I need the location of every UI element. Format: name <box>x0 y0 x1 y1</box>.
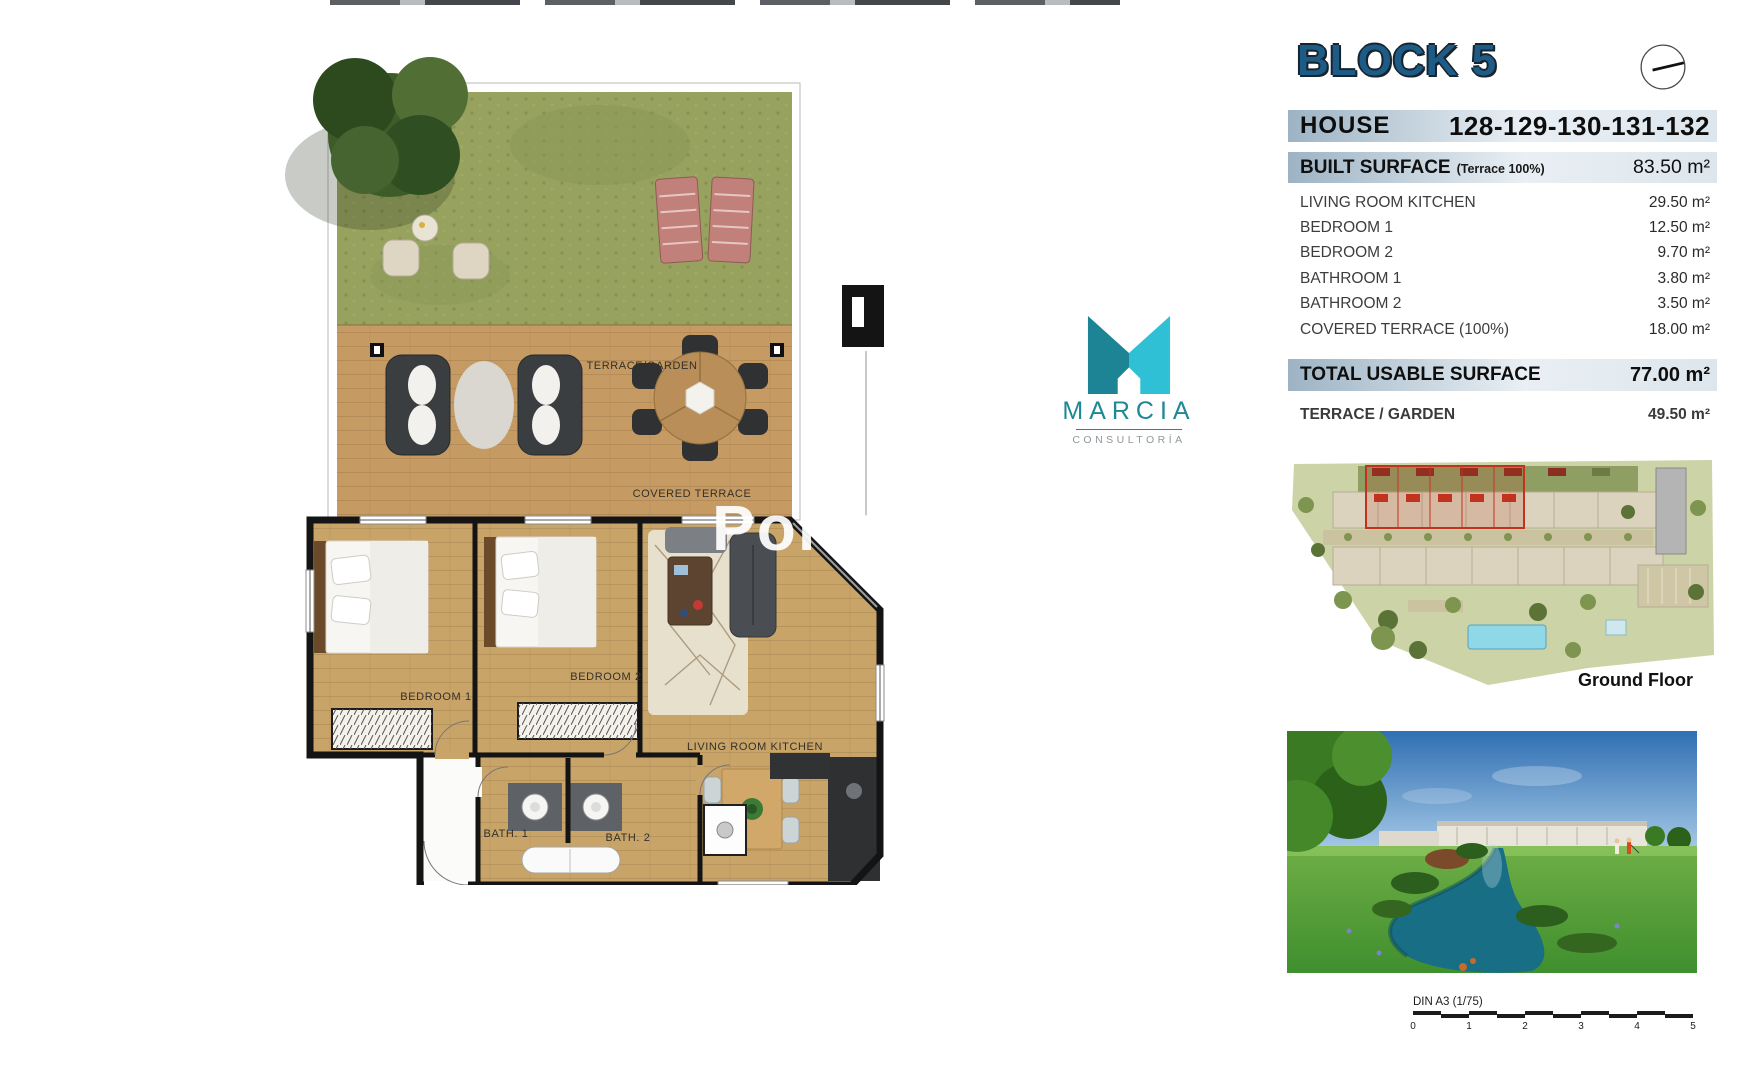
deck-armchairs <box>386 355 582 455</box>
marcia-logo: MARCIA CONSULTORÍA <box>1040 316 1218 446</box>
scale-bar: DIN A3 (1/75) 0 1 2 3 4 5 <box>1413 996 1694 1033</box>
room-surface-table: LIVING ROOM KITCHEN 29.50 m² BEDROOM 1 1… <box>1288 190 1717 342</box>
house-bar: HOUSE 128-129-130-131-132 <box>1288 110 1717 142</box>
scale-label: DIN A3 (1/75) <box>1413 996 1694 1008</box>
scale-tick: 3 <box>1578 1021 1584 1032</box>
terrace-garden-label: TERRACE / GARDEN <box>1300 406 1455 424</box>
label-bedroom2: BEDROOM 2 <box>570 671 641 683</box>
site-plan <box>1288 450 1718 700</box>
site-highlighted-units <box>1366 466 1524 528</box>
room-label: BATHROOM 2 <box>1300 295 1401 313</box>
logo-rule <box>1076 429 1182 430</box>
table-row: LIVING ROOM KITCHEN 29.50 m² <box>1288 190 1717 215</box>
scale-ticks: 0 1 2 3 4 5 <box>1413 1021 1694 1033</box>
top-edge-artifact <box>330 0 1120 5</box>
wardrobe-bedroom1 <box>332 709 432 749</box>
scale-tick: 4 <box>1634 1021 1640 1032</box>
label-bath1: BATH. 1 <box>484 828 529 840</box>
wardrobe-bedroom2 <box>518 703 638 739</box>
room-value: 3.50 m² <box>1657 295 1710 313</box>
room-value: 12.50 m² <box>1649 219 1710 237</box>
room-label: LIVING ROOM KITCHEN <box>1300 194 1476 212</box>
logo-subtitle: CONSULTORÍA <box>1040 434 1218 446</box>
compass-icon <box>1638 42 1688 92</box>
tree <box>285 57 468 230</box>
terrace-garden-row: TERRACE / GARDEN 49.50 m² <box>1288 402 1717 428</box>
floor-plan: TERRACE/GARDEN COVERED TERRACE BEDROOM 1… <box>270 25 920 885</box>
room-value: 29.50 m² <box>1649 194 1710 212</box>
room-value: 9.70 m² <box>1657 244 1710 262</box>
block-title: BLOCK 5 <box>1288 36 1657 86</box>
table-row: BEDROOM 1 12.50 m² <box>1288 215 1717 240</box>
marcia-logo-icon <box>1087 316 1171 394</box>
site-plan-caption: Ground Floor <box>1288 670 1693 691</box>
built-surface-note: (Terrace 100%) <box>1457 162 1545 176</box>
scale-tick: 5 <box>1690 1021 1696 1032</box>
label-terrace-garden: TERRACE/GARDEN <box>586 360 697 372</box>
room-label: BEDROOM 1 <box>1300 219 1393 237</box>
room-value: 18.00 m² <box>1649 321 1710 339</box>
room-label: BEDROOM 2 <box>1300 244 1393 262</box>
built-surface-value: 83.50 m² <box>1633 156 1710 179</box>
bed-bedroom1 <box>314 541 428 653</box>
table-row: BEDROOM 2 9.70 m² <box>1288 241 1717 266</box>
total-surface-label: TOTAL USABLE SURFACE <box>1300 364 1541 386</box>
built-surface-label: BUILT SURFACE <box>1300 157 1451 179</box>
room-value: 3.80 m² <box>1657 270 1710 288</box>
room-label: BATHROOM 1 <box>1300 270 1401 288</box>
total-surface-value: 77.00 m² <box>1630 364 1710 387</box>
house-label: HOUSE <box>1300 112 1390 140</box>
label-bedroom1: BEDROOM 1 <box>400 691 471 703</box>
total-surface-bar: TOTAL USABLE SURFACE 77.00 m² <box>1288 359 1717 391</box>
table-row: BATHROOM 2 3.50 m² <box>1288 292 1717 317</box>
built-surface-bar: BUILT SURFACE (Terrace 100%) 83.50 m² <box>1288 152 1717 183</box>
property-photo <box>1287 731 1697 973</box>
watermark: Porta <box>712 496 886 560</box>
table-row: COVERED TERRACE (100%) 18.00 m² <box>1288 317 1717 342</box>
terrace-garden-value: 49.50 m² <box>1648 406 1710 424</box>
entrance-hall-floor <box>420 757 476 883</box>
room-label: COVERED TERRACE (100%) <box>1300 321 1509 339</box>
label-living: LIVING ROOM KITCHEN <box>687 741 823 753</box>
table-row: BATHROOM 1 3.80 m² <box>1288 266 1717 291</box>
page: TERRACE/GARDEN COVERED TERRACE BEDROOM 1… <box>0 0 1749 1080</box>
neighbour-wall-stub <box>842 285 884 517</box>
logo-name: MARCIA <box>1040 397 1218 426</box>
scale-tick: 1 <box>1466 1021 1472 1032</box>
scale-tick: 0 <box>1410 1021 1416 1032</box>
scale-segments <box>1413 1011 1694 1020</box>
bed-bedroom2 <box>484 537 596 647</box>
house-numbers: 128-129-130-131-132 <box>1449 111 1710 142</box>
label-bath2: BATH. 2 <box>606 832 651 844</box>
scale-tick: 2 <box>1522 1021 1528 1032</box>
